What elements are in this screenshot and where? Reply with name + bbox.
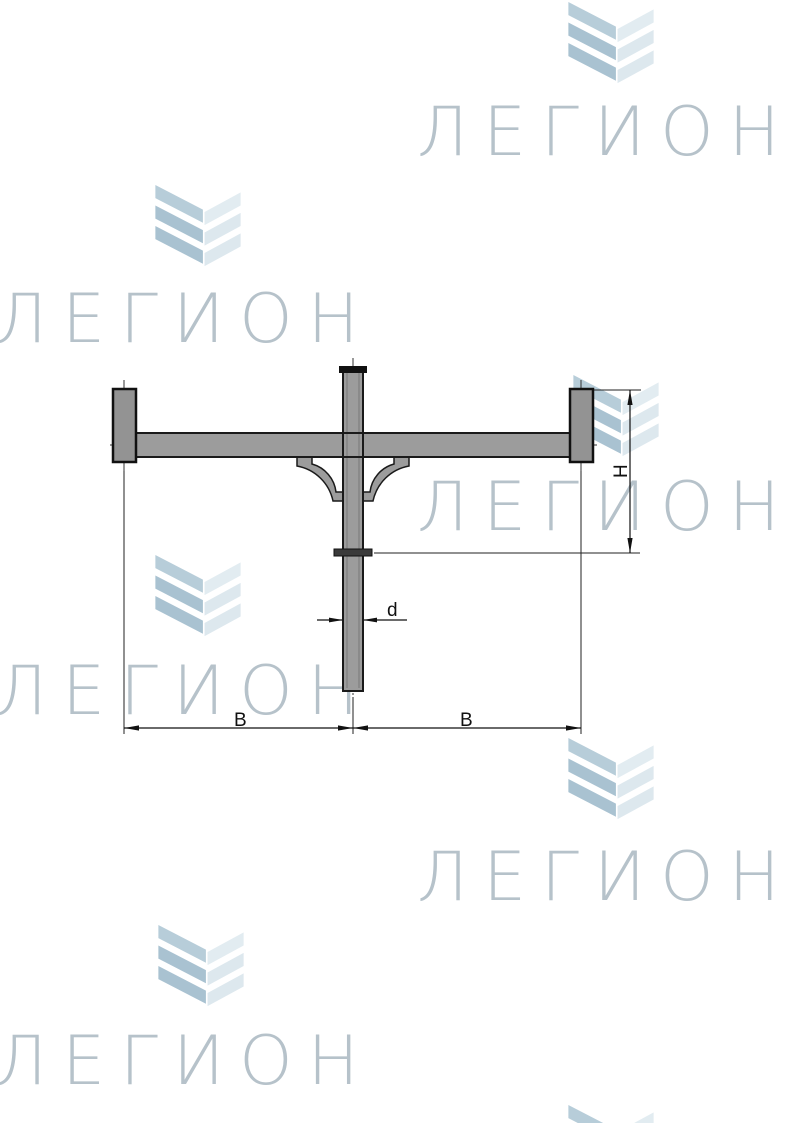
left-gusset: [297, 457, 344, 501]
dim-label-b-left: B: [234, 710, 247, 731]
post-top-cap: [339, 366, 367, 373]
right-flange: [570, 389, 593, 462]
dim-label-b-right: B: [460, 710, 473, 731]
post: [343, 367, 363, 691]
page: ЛЕГИОН ЛЕГИОН ЛЕГИОН ЛЕГИОН ЛЕГИОН ЛЕГИО…: [0, 0, 793, 1123]
dim-label-d: d: [387, 600, 398, 621]
dim-label-h: H: [611, 464, 632, 478]
technical-drawing: B B d H: [0, 0, 793, 1123]
collar-flange: [334, 549, 372, 556]
right-gusset: [362, 457, 409, 501]
left-flange: [113, 389, 136, 462]
